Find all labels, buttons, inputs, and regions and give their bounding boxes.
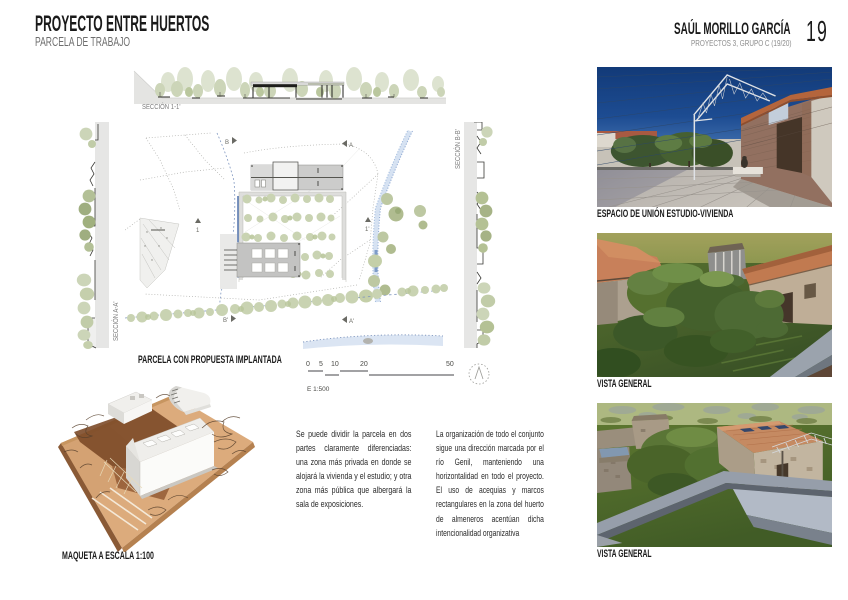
svg-text:E 1:500: E 1:500	[307, 386, 330, 393]
svg-text:A': A'	[349, 319, 354, 325]
svg-text:B: B	[225, 140, 229, 146]
svg-text:1': 1'	[365, 227, 369, 233]
svg-text:10: 10	[331, 361, 339, 368]
svg-text:1: 1	[196, 228, 200, 234]
svg-text:B': B'	[223, 318, 228, 324]
svg-text:0: 0	[306, 361, 310, 368]
svg-text:20: 20	[360, 361, 368, 368]
svg-text:50: 50	[446, 361, 454, 368]
svg-text:A: A	[349, 143, 353, 149]
svg-text:5: 5	[319, 361, 323, 368]
